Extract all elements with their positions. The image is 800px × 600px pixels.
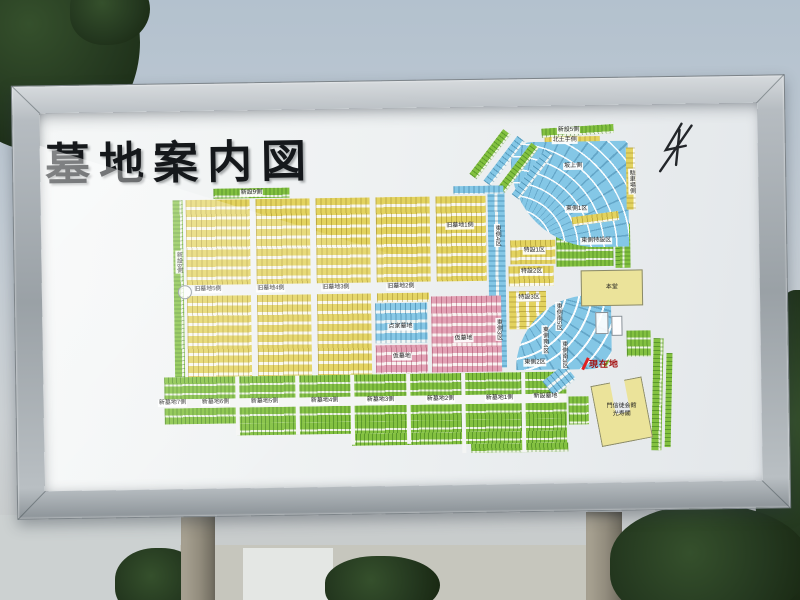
old-cemetery-5-upper-section	[186, 199, 251, 285]
map-label: 光寿閣	[612, 411, 632, 418]
map-label: 東側4区	[494, 224, 500, 247]
photo-scene: 墓地案内図 現在地 新設9側新設8側旧墓地5側旧墓地4側旧墓地3側旧墓地2側旧墓…	[0, 0, 800, 600]
map-label: 新墓地6側	[201, 399, 230, 406]
old-cemetery-4-upper-section	[256, 198, 311, 284]
map-label: 東側南4区	[541, 325, 547, 354]
map-label: 旧墓地3側	[321, 284, 350, 291]
map-label: 仮墓地	[454, 335, 474, 342]
old-cemetery-3-upper-section	[316, 197, 371, 283]
current-location-marker: 現在地	[584, 357, 619, 371]
old-cemetery-3-lower-section	[317, 293, 372, 375]
path-gap-2-section	[295, 376, 300, 435]
map-label: 新墓地4側	[310, 397, 339, 404]
map-label: 東側南3区	[561, 340, 567, 369]
map-label: 東側3区	[495, 318, 501, 341]
map-label: 北土手側	[552, 137, 578, 144]
east-strip-2-section	[665, 353, 673, 447]
map-label: 新墓地2側	[426, 396, 455, 403]
map-label: 旧墓地2側	[386, 283, 415, 290]
map-label: 東側南5区	[555, 302, 561, 331]
map-label: 特設1区	[523, 247, 546, 254]
north-mark-icon	[650, 119, 703, 178]
map-label: 門信徒会館	[606, 403, 638, 410]
map-label: 特設2区	[520, 268, 543, 275]
bush-bottom-right	[610, 505, 800, 600]
map-label: 新設9側	[240, 190, 263, 197]
frame-seam	[756, 74, 785, 103]
path-gap-1-section	[235, 376, 240, 435]
map-label: 東側特設区	[580, 237, 612, 244]
old-cemetery-2-lower-section	[377, 293, 429, 303]
small-blue-strip-section	[453, 185, 503, 194]
old-cemetery-1-section	[436, 196, 487, 282]
frame-seam	[11, 86, 40, 115]
map-label: 旧墓地1側	[445, 222, 474, 229]
map-label: 仮墓地	[392, 353, 412, 360]
map-label: 東側2区	[523, 359, 546, 366]
map-label: 新墓地1側	[485, 395, 514, 402]
frame-seam	[18, 490, 47, 519]
map-label: 新設8側	[175, 251, 181, 274]
current-location-label: 現在地	[589, 357, 619, 370]
old-cemetery-2-upper-section	[376, 197, 431, 283]
map-label: 駐車場側	[628, 169, 634, 195]
sign-post-left	[181, 505, 215, 600]
outline-building-2-section	[611, 316, 622, 336]
east-small-rows-section	[627, 330, 651, 356]
map-label: 坂上側	[563, 163, 583, 170]
old-cemetery-5-lower-section	[187, 295, 252, 377]
kari-bochi-right-section	[431, 296, 502, 373]
map-label: 新墓地3側	[366, 397, 395, 404]
sign-board: 墓地案内図 現在地 新設9側新設8側旧墓地5側旧墓地4側旧墓地3側旧墓地2側旧墓…	[39, 103, 763, 492]
map-label: 特設3区	[517, 294, 540, 301]
map-label: 新設5側	[557, 127, 580, 134]
east-strip-1-section	[651, 338, 663, 450]
map-label: 旧墓地4側	[256, 285, 285, 292]
map-label: 本堂	[605, 284, 619, 291]
old-cemetery-4-lower-section	[257, 294, 312, 376]
new-cemetery-low3-section	[471, 443, 568, 453]
frame-seam	[761, 480, 790, 509]
map-label: 新墓地5側	[250, 398, 279, 405]
cemetery-map-sign: 墓地案内図 現在地 新設9側新設8側旧墓地5側旧墓地4側旧墓地3側旧墓地2側旧墓…	[11, 74, 791, 519]
white-structure	[243, 548, 333, 600]
map-label: 新設墓地	[532, 393, 558, 400]
page-title: 墓地案内図	[44, 124, 315, 193]
map-label: 旧墓地5側	[193, 286, 222, 293]
map-label: 東側1区	[565, 206, 588, 213]
outline-building-1-section	[595, 312, 608, 334]
map-label: 点家墓地	[387, 323, 413, 330]
new-cemetery-right-section	[568, 396, 588, 424]
map-label: 新墓地7側	[158, 400, 187, 407]
cemetery-map: 墓地案内図 現在地 新設9側新設8側旧墓地5側旧墓地4側旧墓地3側旧墓地2側旧墓…	[39, 103, 763, 492]
